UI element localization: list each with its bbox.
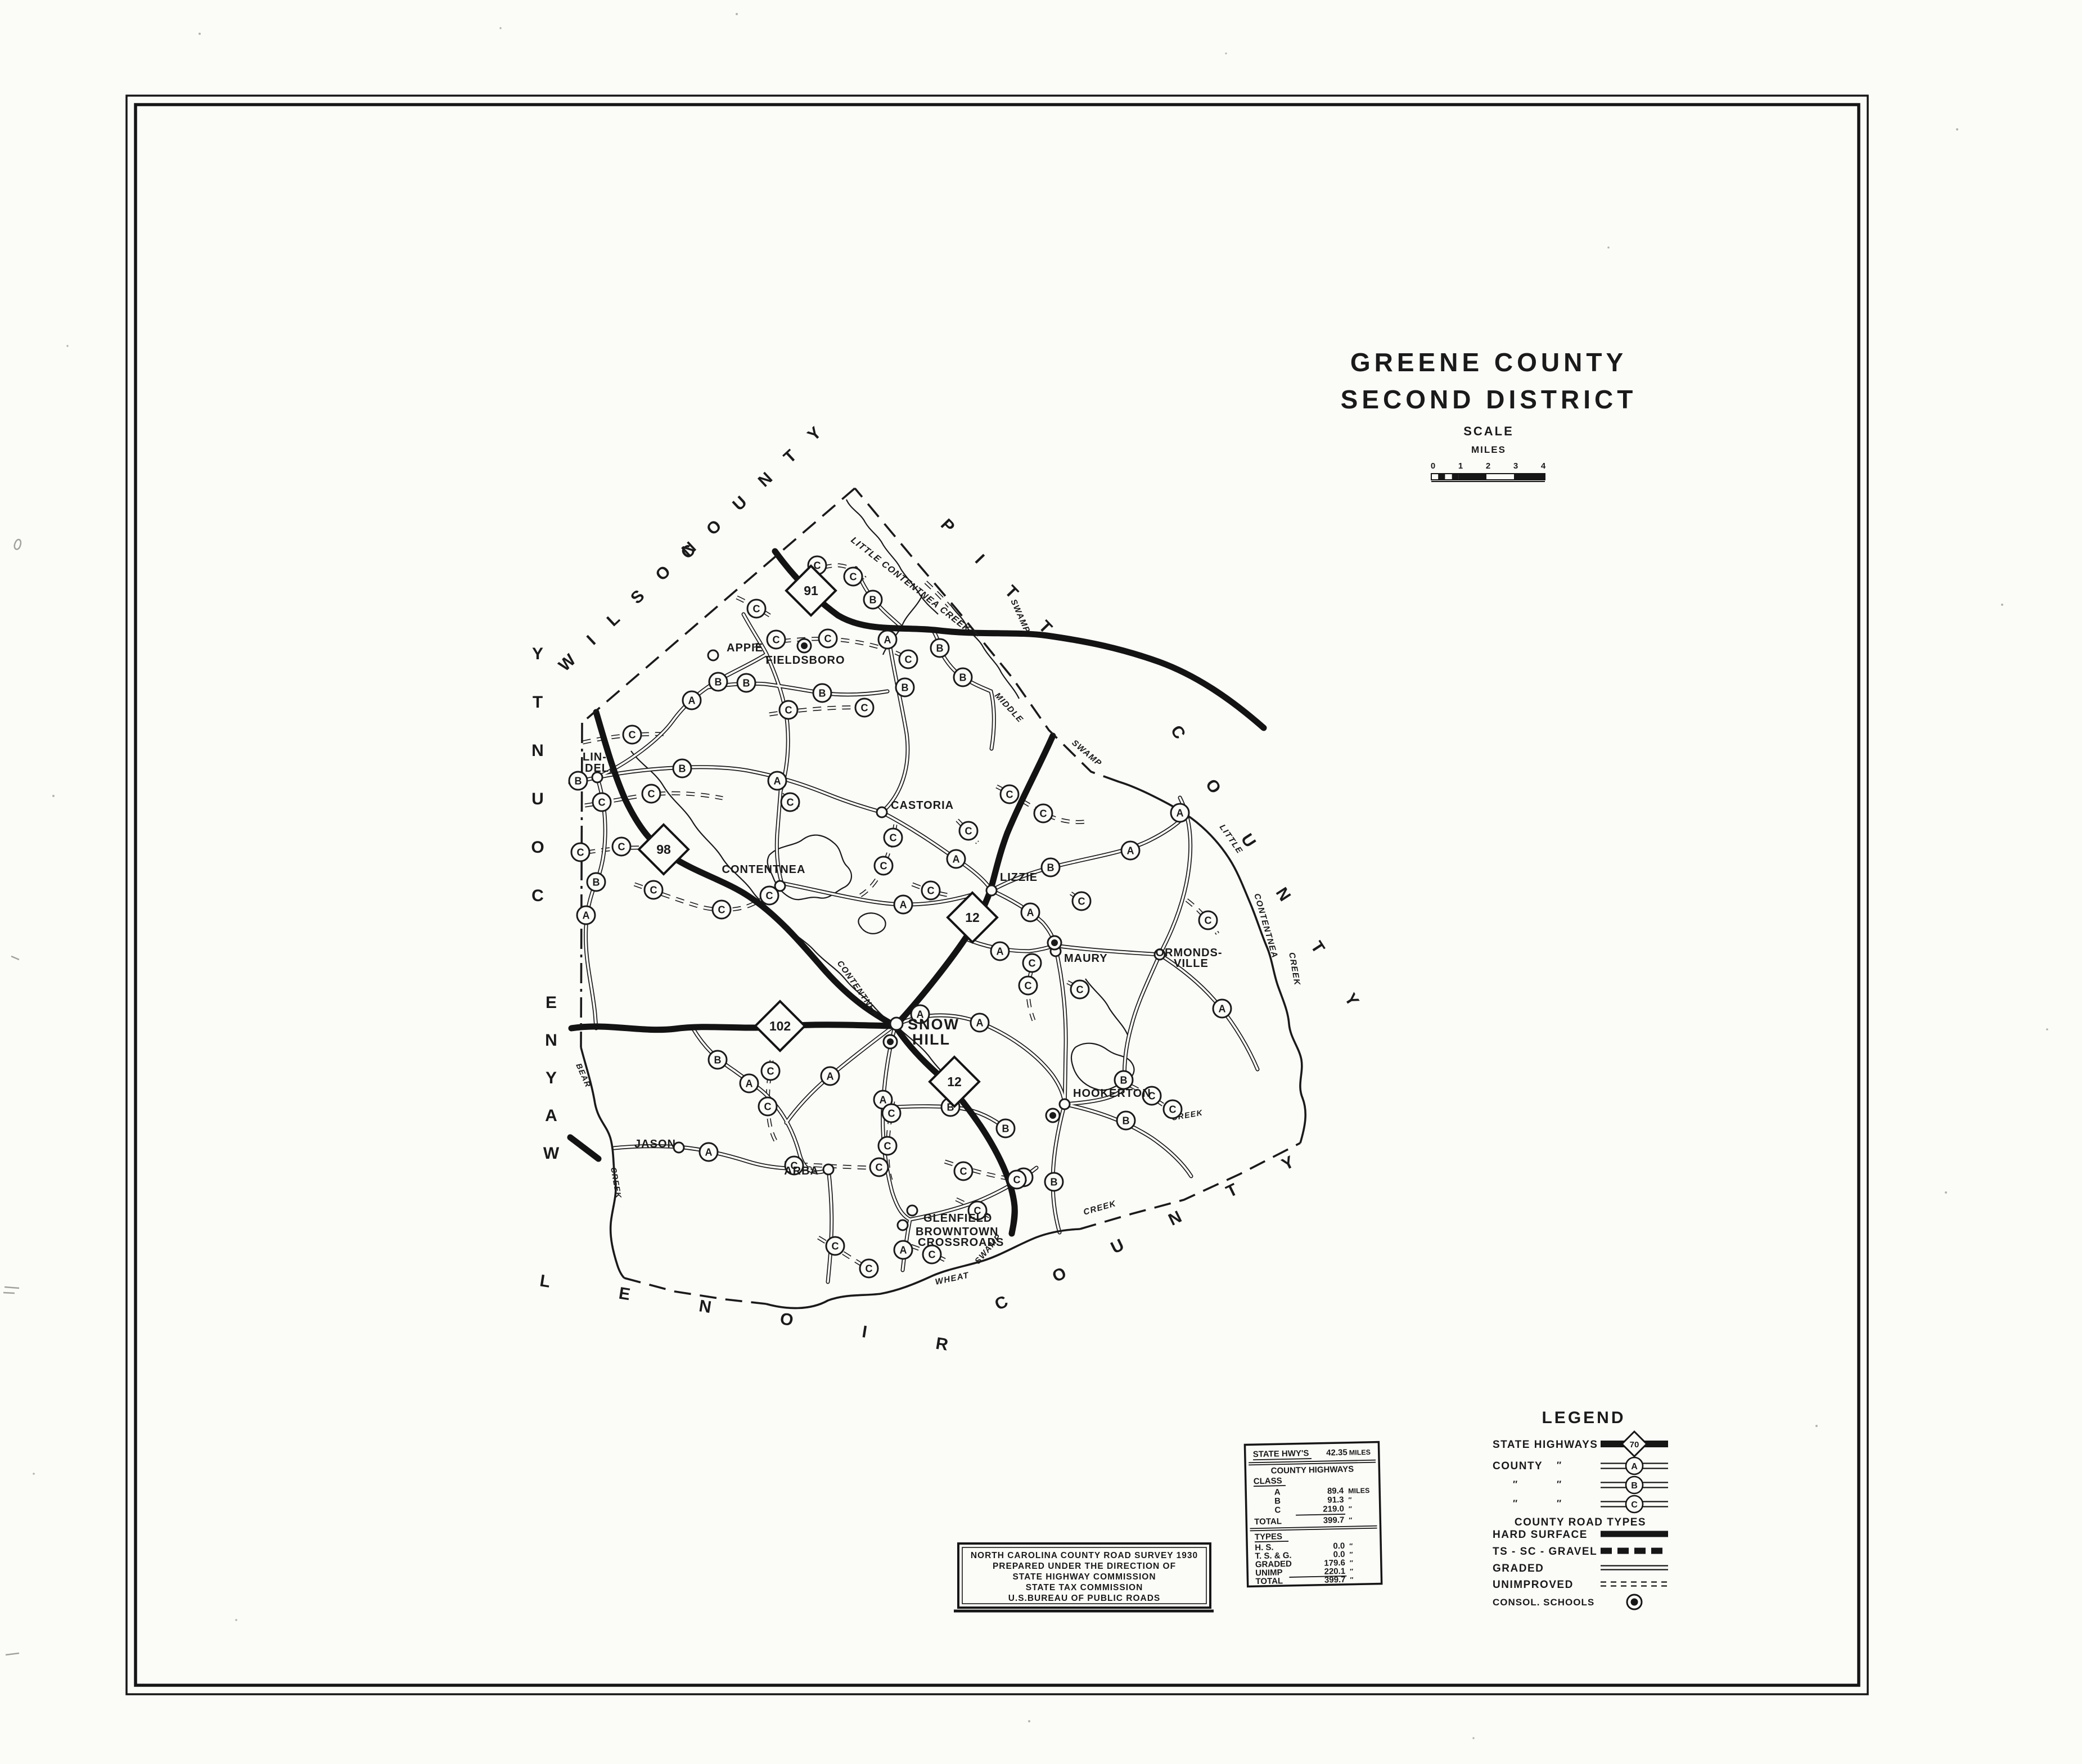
svg-text:A: A [688, 695, 696, 706]
road-class-marker-c: C [642, 785, 660, 803]
town-label: SNOW [908, 1016, 959, 1033]
stats-header-unit: MILES [1349, 1448, 1371, 1457]
svg-text:A: A [884, 634, 891, 646]
svg-text:B: B [1051, 1177, 1058, 1188]
svg-text:B: B [1120, 1075, 1128, 1086]
road-class-marker-c: C [1001, 785, 1019, 803]
town-label: VILLE [1174, 957, 1209, 970]
stats-class-c-label: C [1274, 1505, 1281, 1515]
road-class-marker-c: C [1019, 976, 1037, 994]
stats-subtitle: COUNTY HIGHWAYS [1270, 1464, 1354, 1475]
svg-text:C: C [1040, 808, 1047, 820]
road-class-marker-b: B [1115, 1071, 1133, 1089]
stats-types-label: TYPES [1255, 1532, 1283, 1542]
svg-text:C: C [1169, 1104, 1177, 1115]
svg-text:A: A [900, 1245, 907, 1256]
svg-text:C: C [1078, 896, 1085, 907]
svg-text:A: A [583, 910, 590, 921]
road-class-marker-c: C [1199, 911, 1217, 929]
road-class-marker-c: C [844, 568, 862, 586]
svg-text:C: C [888, 1108, 895, 1119]
svg-text:A: A [997, 946, 1004, 957]
svg-text:B: B [679, 763, 686, 775]
svg-text:C: C [880, 861, 887, 872]
town-label: ARBA [784, 1165, 819, 1177]
scale-bar: 0 1 2 3 4 [1431, 461, 1546, 481]
legend-title: LEGEND [1542, 1408, 1625, 1427]
legend-ditto: ″ [1513, 1479, 1518, 1489]
road-class-marker-a: A [878, 631, 896, 649]
legend-gravel-label: TS - SC - GRAVEL [1493, 1546, 1597, 1558]
note-line-4: STATE TAX COMMISSION [1026, 1583, 1143, 1592]
svg-text:C: C [767, 1066, 774, 1077]
road-class-marker-b: B [813, 684, 831, 702]
svg-text:B: B [819, 688, 826, 699]
road-class-marker-a: A [700, 1143, 718, 1161]
state-highways [570, 551, 1264, 1234]
highway-shield-102: 102 [755, 1001, 805, 1051]
legend-ditto: ″ [1557, 1498, 1562, 1509]
svg-text:12: 12 [947, 1074, 962, 1089]
svg-text:A: A [746, 1078, 753, 1090]
road-class-marker-c: C [819, 629, 837, 647]
creek-label: CREEK [609, 1167, 624, 1199]
county-label-letter: N [531, 741, 544, 760]
county-label: C O U N T Y [678, 417, 832, 563]
road-class-marker-c: C [759, 1097, 777, 1115]
svg-text:A: A [774, 776, 781, 787]
road-class-marker-c: C [612, 838, 630, 856]
svg-text:C: C [965, 826, 972, 837]
legend: LEGEND STATE HIGHWAYS 70 COUNTY ″ A ″ ″ … [1493, 1408, 1668, 1609]
towns: APPIEFIELDSBOROLIN-DELLCASTORIACONTENTNE… [583, 639, 1223, 1249]
road-class-marker-c: C [593, 793, 611, 811]
creek-label: LITTLE CONTENTNEA CREEK [849, 535, 972, 634]
svg-text:C: C [1029, 958, 1036, 969]
svg-text:C: C [929, 1249, 936, 1261]
road-class-marker-c: C [870, 1158, 888, 1176]
svg-text:C: C [1076, 984, 1084, 996]
svg-text:C: C [960, 1166, 967, 1177]
creek-label: CONTENTNEA [1252, 892, 1279, 959]
road-class-marker-c: C [781, 793, 799, 811]
town-label: JASON [634, 1138, 676, 1150]
road-class-marker-a: A [1121, 841, 1139, 859]
town-label: CONTENTNEA [722, 863, 806, 876]
svg-text:B: B [869, 595, 877, 606]
town-label: APPIE [727, 642, 763, 654]
miles-label: MILES [1471, 444, 1506, 455]
svg-text:C: C [850, 571, 857, 583]
road-class-marker-c: C [747, 600, 765, 618]
road-class-marker-c: C [855, 699, 873, 717]
road-class-marker-c: C [1023, 954, 1041, 972]
stats-types-total-value: 399.7 [1324, 1575, 1346, 1585]
legend-class-b-letter: B [1631, 1481, 1638, 1491]
svg-text:91: 91 [804, 583, 818, 598]
svg-text:A: A [1027, 907, 1034, 919]
svg-text:C: C [785, 705, 792, 716]
creek-label: SWAMP [1070, 738, 1103, 768]
town-label: HILL [912, 1031, 950, 1048]
road-class-marker-c: C [761, 1062, 779, 1080]
stats-hs-unit: ″ [1349, 1542, 1353, 1550]
legend-state-highways-label: STATE HIGHWAYS [1493, 1439, 1598, 1451]
stats-tsg-unit: ″ [1349, 1551, 1353, 1559]
legend-schools-label: CONSOL. SCHOOLS [1493, 1597, 1594, 1608]
svg-text:A: A [705, 1147, 713, 1158]
stats-class-c-value: 219.0 [1323, 1504, 1344, 1514]
road-class-marker-c: C [623, 726, 641, 744]
road-class-marker-c: C [1072, 892, 1090, 910]
svg-text:C: C [577, 847, 584, 858]
svg-text:C: C [718, 904, 725, 916]
legend-county-a-symbol: A [1601, 1457, 1668, 1474]
road-class-marker-a: A [947, 850, 965, 868]
stats-class-label: CLASS [1254, 1476, 1282, 1486]
svg-text:B: B [715, 677, 722, 688]
stats-header-label: STATE HWY'S [1253, 1448, 1309, 1459]
svg-text:B: B [902, 682, 909, 694]
svg-text:C: C [832, 1241, 839, 1252]
svg-text:B: B [575, 776, 582, 787]
scale-tick-0: 0 [1431, 461, 1435, 471]
paper-specks [33, 13, 2048, 1739]
svg-text:C: C [1025, 980, 1032, 992]
svg-text:B: B [593, 877, 600, 888]
stats-class-c-unit: ″ [1349, 1505, 1352, 1513]
road-class-marker-c: C [954, 1162, 972, 1180]
svg-text:C: C [1205, 915, 1212, 926]
town-appie: APPIE [708, 642, 763, 660]
svg-text:C: C [1006, 789, 1013, 800]
road-class-marker-c: C [878, 1137, 896, 1155]
road-class-marker-c: C [959, 822, 977, 840]
road-class-marker-a: A [894, 1241, 912, 1259]
road-class-marker-c: C [1071, 980, 1089, 998]
county-label: L E N O I R [539, 1271, 982, 1360]
stats-class-b-unit: ″ [1348, 1496, 1351, 1504]
road-class-marker-b: B [1117, 1111, 1135, 1129]
road-class-marker-b: B [1042, 858, 1060, 876]
stats-class-total-unit: ″ [1349, 1516, 1352, 1524]
svg-text:C: C [766, 890, 773, 902]
county-label-letter: A [545, 1106, 557, 1125]
legend-unimproved-symbol [1601, 1582, 1668, 1586]
county-roads-graded [570, 568, 1258, 1282]
svg-text:A: A [953, 854, 960, 865]
road-class-marker-a: A [1021, 903, 1039, 921]
map-title-line1: GREENE COUNTY [1350, 348, 1627, 377]
note-line-5: U.S.BUREAU OF PUBLIC ROADS [1008, 1594, 1161, 1603]
svg-text:A: A [1219, 1003, 1226, 1015]
county-label-letter: E [546, 993, 557, 1012]
road-class-marker-b: B [864, 591, 882, 609]
svg-text:C: C [824, 633, 832, 645]
county-label-letter: W [543, 1144, 560, 1163]
stats-class-b-value: 91.3 [1327, 1495, 1344, 1505]
legend-unimproved-label: UNIMPROVED [1493, 1579, 1574, 1591]
county-label-letter: O [531, 838, 544, 857]
road-class-marker-a: A [991, 942, 1009, 960]
road-class-marker-c: C [899, 650, 917, 668]
road-class-marker-b: B [954, 668, 972, 686]
svg-text:A: A [827, 1071, 834, 1082]
svg-text:C: C [787, 797, 794, 808]
scale-label: SCALE [1463, 424, 1514, 438]
svg-text:C: C [629, 730, 636, 741]
map-sheet: GREENE COUNTY SECOND DISTRICT SCALE MILE… [0, 0, 2082, 1764]
svg-text:C: C [1013, 1174, 1021, 1186]
town-label: HOOKERTON [1073, 1087, 1151, 1100]
county-label-letter: Y [546, 1069, 557, 1087]
road-class-marker-a: A [577, 906, 595, 924]
town-label: FIELDSBORO [765, 654, 845, 667]
road-class-marker-a: A [821, 1067, 839, 1085]
road-class-marker-c: C [875, 857, 893, 875]
road-class-marker-b: B [673, 759, 691, 777]
note-line-1: NORTH CAROLINA COUNTY ROAD SURVEY 1930 [971, 1551, 1198, 1560]
stats-types-total-unit: ″ [1350, 1576, 1353, 1584]
svg-text:12: 12 [965, 910, 980, 925]
town-label: LIN- [583, 751, 607, 763]
road-class-marker-c: C [1034, 804, 1052, 822]
creek-label: BEAR [574, 1062, 593, 1089]
stats-graded-unit: ″ [1350, 1559, 1353, 1567]
scale-tick-1: 1 [1458, 461, 1463, 471]
stats-class-b-label: B [1274, 1496, 1281, 1506]
scale-tick-3: 3 [1513, 461, 1518, 471]
legend-graded-label: GRADED [1493, 1563, 1544, 1574]
road-class-marker-c: C [645, 881, 663, 899]
svg-text:98: 98 [656, 842, 671, 857]
scale-tick-2: 2 [1486, 461, 1490, 471]
road-class-marker-b: B [1045, 1173, 1063, 1191]
stats-class-a-label: A [1274, 1487, 1281, 1497]
svg-text:C: C [927, 885, 935, 897]
road-class-marker-c: C [882, 1104, 900, 1122]
legend-hard-surface-label: HARD SURFACE [1493, 1529, 1588, 1541]
road-class-marker-b: B [931, 639, 949, 657]
road-class-marker-a: A [1171, 804, 1189, 822]
legend-ditto: ″ [1557, 1479, 1562, 1489]
legend-county-c-symbol: C [1601, 1496, 1668, 1513]
county-label-letter: T [533, 693, 543, 712]
road-class-marker-a: A [768, 772, 786, 790]
svg-text:A: A [1177, 808, 1184, 819]
legend-ditto: ″ [1513, 1498, 1518, 1509]
road-class-markers: AAAAAAAAAAAAAAAAAAABBBBBBBBBBBBBBBBBCCCC… [569, 556, 1231, 1277]
title-block: GREENE COUNTY SECOND DISTRICT SCALE MILE… [1341, 348, 1637, 481]
stats-types-total-label: TOTAL [1255, 1576, 1283, 1586]
svg-text:B: B [959, 672, 967, 683]
creek-label: CREEK [1287, 952, 1302, 987]
mileage-stats-box: STATE HWY'S 42.35 MILES COUNTY HIGHWAYS … [1245, 1442, 1381, 1587]
stats-class-a-value: 89.4 [1327, 1486, 1344, 1496]
svg-text:C: C [905, 654, 912, 665]
road-class-marker-a: A [894, 895, 912, 913]
svg-text:B: B [1047, 862, 1054, 874]
map-title-line2: SECOND DISTRICT [1341, 385, 1637, 414]
road-class-marker-b: B [896, 678, 914, 696]
town-label: CASTORIA [891, 799, 954, 812]
svg-text:102: 102 [769, 1019, 791, 1033]
road-class-marker-c: C [1008, 1171, 1026, 1189]
svg-text:A: A [976, 1018, 984, 1029]
legend-county-b-symbol: B [1601, 1477, 1668, 1493]
svg-text:B: B [714, 1055, 722, 1066]
road-class-marker-b: B [587, 873, 605, 891]
town-arba: ARBA [784, 1164, 833, 1177]
legend-county-label: COUNTY [1493, 1460, 1543, 1472]
county-label-letter: C [531, 886, 544, 905]
stats-class-a-unit: MILES [1348, 1487, 1369, 1495]
road-class-marker-c: C [860, 1259, 878, 1277]
legend-road-types-title: COUNTY ROAD TYPES [1515, 1516, 1646, 1528]
stats-class-total-label: TOTAL [1254, 1516, 1282, 1527]
svg-text:C: C [884, 1141, 891, 1152]
town-label: MAURY [1064, 952, 1108, 965]
county-label: C O U N T Y [992, 1142, 1319, 1315]
svg-text:C: C [598, 797, 606, 808]
legend-class-c-letter: C [1631, 1500, 1638, 1510]
road-class-marker-a: A [683, 691, 701, 709]
road-class-marker-c: C [571, 843, 589, 861]
road-class-marker-a: A [971, 1014, 989, 1032]
town-label: LIZZIE [1000, 871, 1038, 884]
svg-text:B: B [936, 643, 944, 654]
svg-text:A: A [1127, 845, 1134, 857]
svg-text:C: C [866, 1263, 873, 1275]
margin-pencil-marks [3, 539, 21, 1655]
road-class-marker-b: B [709, 673, 727, 691]
road-class-marker-c: C [1164, 1100, 1182, 1118]
note-line-2: PREPARED UNDER THE DIRECTION OF [993, 1561, 1176, 1571]
town-ormondsville: ORMONDS-VILLE [1155, 947, 1223, 970]
svg-text:C: C [876, 1162, 883, 1173]
creek-label: CREEK [1082, 1199, 1117, 1217]
town-label: CROSSROADS [918, 1236, 1004, 1249]
town-jason: JASON [634, 1138, 684, 1153]
svg-text:C: C [753, 604, 760, 615]
svg-text:C: C [618, 841, 625, 853]
legend-school-symbol [1627, 1595, 1642, 1609]
town-label: GLENFIELD [923, 1212, 992, 1225]
stats-class-total-value: 399.7 [1323, 1515, 1345, 1525]
svg-text:C: C [764, 1101, 772, 1113]
road-class-marker-c: C [713, 901, 731, 919]
road-class-marker-c: C [884, 829, 902, 847]
road-class-marker-c: C [767, 631, 785, 649]
legend-shield-number: 70 [1630, 1440, 1639, 1450]
legend-state-highway-symbol: 70 [1601, 1432, 1668, 1456]
svg-text:B: B [1123, 1115, 1130, 1127]
road-class-marker-c: C [779, 701, 797, 719]
legend-class-a-letter: A [1631, 1462, 1638, 1471]
county-label-letter: N [545, 1031, 557, 1050]
svg-text:A: A [900, 899, 907, 911]
survey-note-box: NORTH CAROLINA COUNTY ROAD SURVEY 1930 P… [954, 1543, 1214, 1611]
svg-text:B: B [1002, 1123, 1010, 1135]
road-class-marker-b: B [737, 674, 755, 692]
svg-text:C: C [648, 789, 655, 800]
creek-label: MIDDLE [993, 691, 1025, 724]
note-line-3: STATE HIGHWAY COMMISSION [1012, 1572, 1156, 1582]
state-highway-stub-west [570, 1137, 598, 1159]
svg-text:C: C [773, 634, 780, 646]
svg-text:A: A [880, 1095, 887, 1106]
road-class-marker-a: A [1213, 1000, 1231, 1018]
town-label: DELL [585, 762, 616, 775]
highway-shield-12: 12 [930, 1057, 979, 1106]
road-class-marker-c: C [826, 1237, 844, 1255]
svg-text:C: C [861, 703, 868, 714]
county-label-letter: Y [532, 645, 543, 663]
svg-text:C: C [650, 885, 657, 896]
road-class-marker-b: B [709, 1051, 727, 1069]
map-canvas: GREENE COUNTY SECOND DISTRICT SCALE MILE… [0, 0, 2082, 1764]
county-roads-graded [570, 568, 1258, 1282]
road-class-marker-b: B [997, 1119, 1015, 1137]
road-class-marker-a: A [740, 1074, 758, 1092]
road-class-marker-c: C [922, 881, 940, 899]
state-highway-102 [571, 1025, 895, 1030]
county-label-letter: U [531, 790, 544, 808]
legend-ditto: ″ [1557, 1460, 1562, 1470]
svg-text:B: B [743, 678, 750, 689]
svg-text:C: C [890, 832, 897, 844]
stats-unimp-unit: ″ [1350, 1568, 1353, 1576]
scale-tick-4: 4 [1541, 461, 1546, 471]
stats-header-value: 42.35 [1326, 1448, 1348, 1458]
legend-graded-symbol [1601, 1566, 1668, 1570]
